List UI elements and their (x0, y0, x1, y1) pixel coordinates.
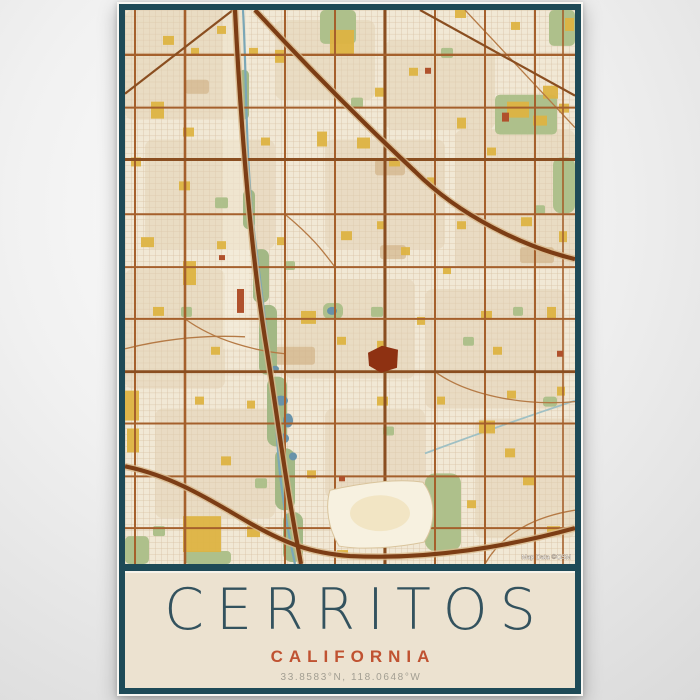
map-area: Map Data ©OSM (125, 10, 575, 564)
city-map-graphic: Map Data ©OSM (125, 10, 575, 564)
open-land (328, 481, 433, 548)
map-attribution: Map Data ©OSM (522, 553, 571, 561)
poster-frame: Map Data ©OSM CERRITOS CALIFORNIA 33.858… (119, 4, 581, 694)
map-poster: Map Data ©OSM CERRITOS CALIFORNIA 33.858… (117, 2, 583, 696)
coordinates: 33.8583°N, 118.0648°W (125, 673, 575, 683)
city-name: CERRITOS (125, 582, 575, 639)
poster-title-block: CERRITOS CALIFORNIA 33.8583°N, 118.0648°… (125, 564, 575, 688)
state-name: CALIFORNIA (125, 648, 575, 665)
page: { "poster": { "title": "CERRITOS", "subt… (0, 0, 700, 700)
